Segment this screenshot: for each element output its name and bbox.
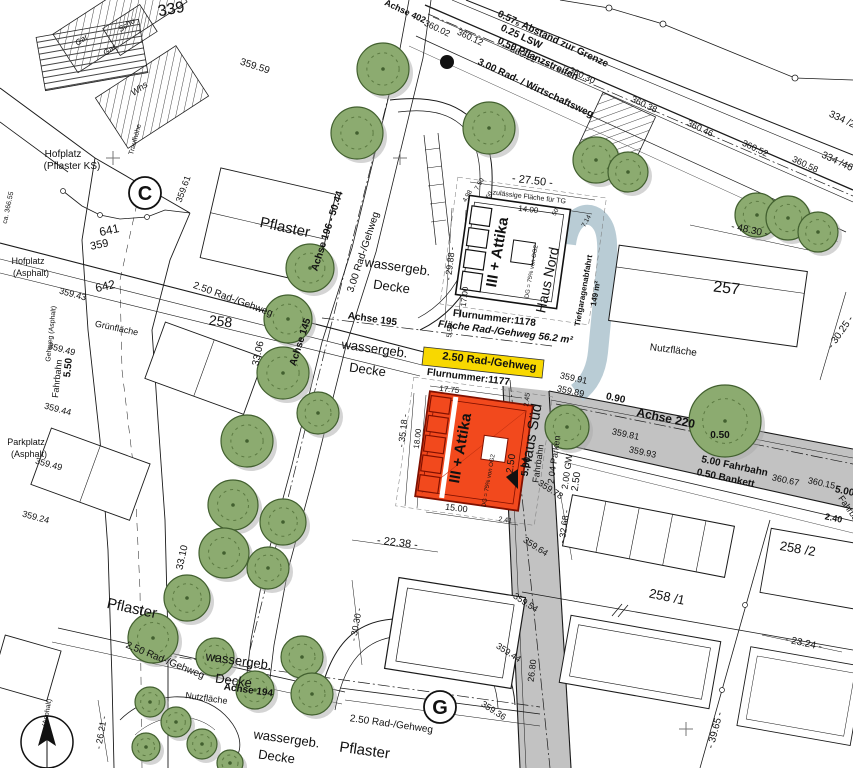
building-left-bottom [0,635,61,701]
map-label: 360.46 [686,118,715,139]
tree-trunk [310,692,314,696]
building-258-2a [760,528,853,609]
map-label: 359.44 [43,401,72,418]
map-label: 334 /2 [827,109,853,131]
tree-trunk [148,700,152,704]
map-label: Pflaster [105,595,158,622]
tree-icon [217,750,243,768]
map-label: 258 [208,312,233,331]
map-label: wassergeb. [340,336,409,360]
tree-trunk [786,216,790,220]
map-label: 359 [89,237,109,253]
tree-trunk [231,503,235,507]
map-label: 33.10 [175,544,191,571]
tree-trunk [565,425,569,429]
marker-C: C [129,177,161,209]
map-label: Decke [257,747,296,767]
building-cells [563,495,735,578]
map-label: Hofplatz [45,149,82,160]
map-label: 641 [98,221,121,239]
map-label: - 30.30 - [348,607,364,642]
tree-trunk [228,761,232,765]
map-label: wassergeb. [363,254,432,278]
map-label: - 26.21 - [93,715,109,750]
map-label: 360.58 [791,154,820,175]
tree-trunk [316,411,320,415]
survey-dot [440,55,454,69]
map-label: 359.59 [239,57,272,77]
map-label: 258 /1 [648,586,686,608]
site-plan-drawing: C G Achse 402360.02360.12360.22360.30360… [0,0,853,768]
map-label: Fahrbahn [50,359,64,398]
building-bottom-middle [385,578,526,689]
map-label: 257 [712,278,741,298]
map-label: (Pflaster KS) [44,161,101,172]
map-label: 359.61 [174,174,193,203]
tree-trunk [300,655,304,659]
building-257 [609,245,808,347]
map-label: Achse 195 [347,311,398,329]
map-label: 360.52 [741,138,770,159]
map-label: 2.50 [570,471,584,492]
tree-trunk [281,520,285,524]
map-label: 359.24 [21,509,50,526]
map-label: 360.12 [456,27,485,48]
map-label: 0.50 [710,430,730,441]
map-label: ca. 366.55 [2,191,16,225]
map-label: Hofplatz [11,256,45,266]
map-label: 17.00 [459,286,470,308]
tree-trunk [174,720,178,724]
map-label: (Asphalt) [13,268,49,278]
map-label: 2.50 Rad-/Gehweg [192,280,275,319]
tree-trunk [151,636,155,640]
tree-trunk [816,230,820,234]
map-label: 2.50 Rad-/Gehweg [349,713,434,736]
map-label: - 22.38 - [376,535,418,552]
map-label: 339 [157,0,186,20]
map-label: - 29.88 - [443,246,457,281]
tree-trunk [723,419,727,423]
tree-trunk [355,131,359,135]
map-label: Gehweg (Asphalt) [45,306,58,362]
map-label: Decke [372,277,411,297]
tree-trunk [200,742,204,746]
building-258-2b [737,647,853,746]
tree-trunk [222,551,226,555]
map-label: - 23.24 - [784,634,823,653]
site-plan: C G Achse 402360.02360.12360.22360.30360… [0,0,853,768]
map-label: 15.00 [445,502,469,515]
map-label: - 39.65 - [705,711,725,750]
tree-trunk [266,566,270,570]
tree-trunk [626,170,630,174]
map-label: Pflaster [338,739,391,763]
map-label: Nutzfläche [649,342,698,359]
tree-trunk [144,745,148,749]
building-258-1 [559,615,720,708]
map-label: 360.02 [423,18,452,39]
marker-G-letter: G [432,697,448,719]
map-label: Decke [348,360,387,380]
map-label: - 27.50 - [511,173,553,190]
map-label: 642 [94,277,117,295]
map-label: - 35.18 - [396,413,410,448]
map-label: - 30.25 - [826,314,853,351]
map-label: Grünfläche [94,319,139,338]
tiefgarage-ramp [566,215,607,393]
tree-trunk [286,317,290,321]
tree-trunk [245,439,249,443]
court-middle [145,322,264,414]
map-label: Nutzfläche [185,690,229,706]
tree-trunk [487,126,491,130]
map-label: Parkplatz [7,437,45,447]
tree-trunk [185,596,189,600]
marker-G: G [424,691,456,723]
tree-trunk [381,67,385,71]
tree-trunk [281,371,285,375]
tree-trunk [594,158,598,162]
map-label: (Asphalt) [11,449,47,459]
map-label: 2.40 [824,511,843,524]
map-label: 359.43 [58,286,87,303]
marker-C-letter: C [138,183,152,205]
court-lower [31,428,150,520]
tree-trunk [755,213,759,217]
map-label: 2.41 [498,516,512,525]
